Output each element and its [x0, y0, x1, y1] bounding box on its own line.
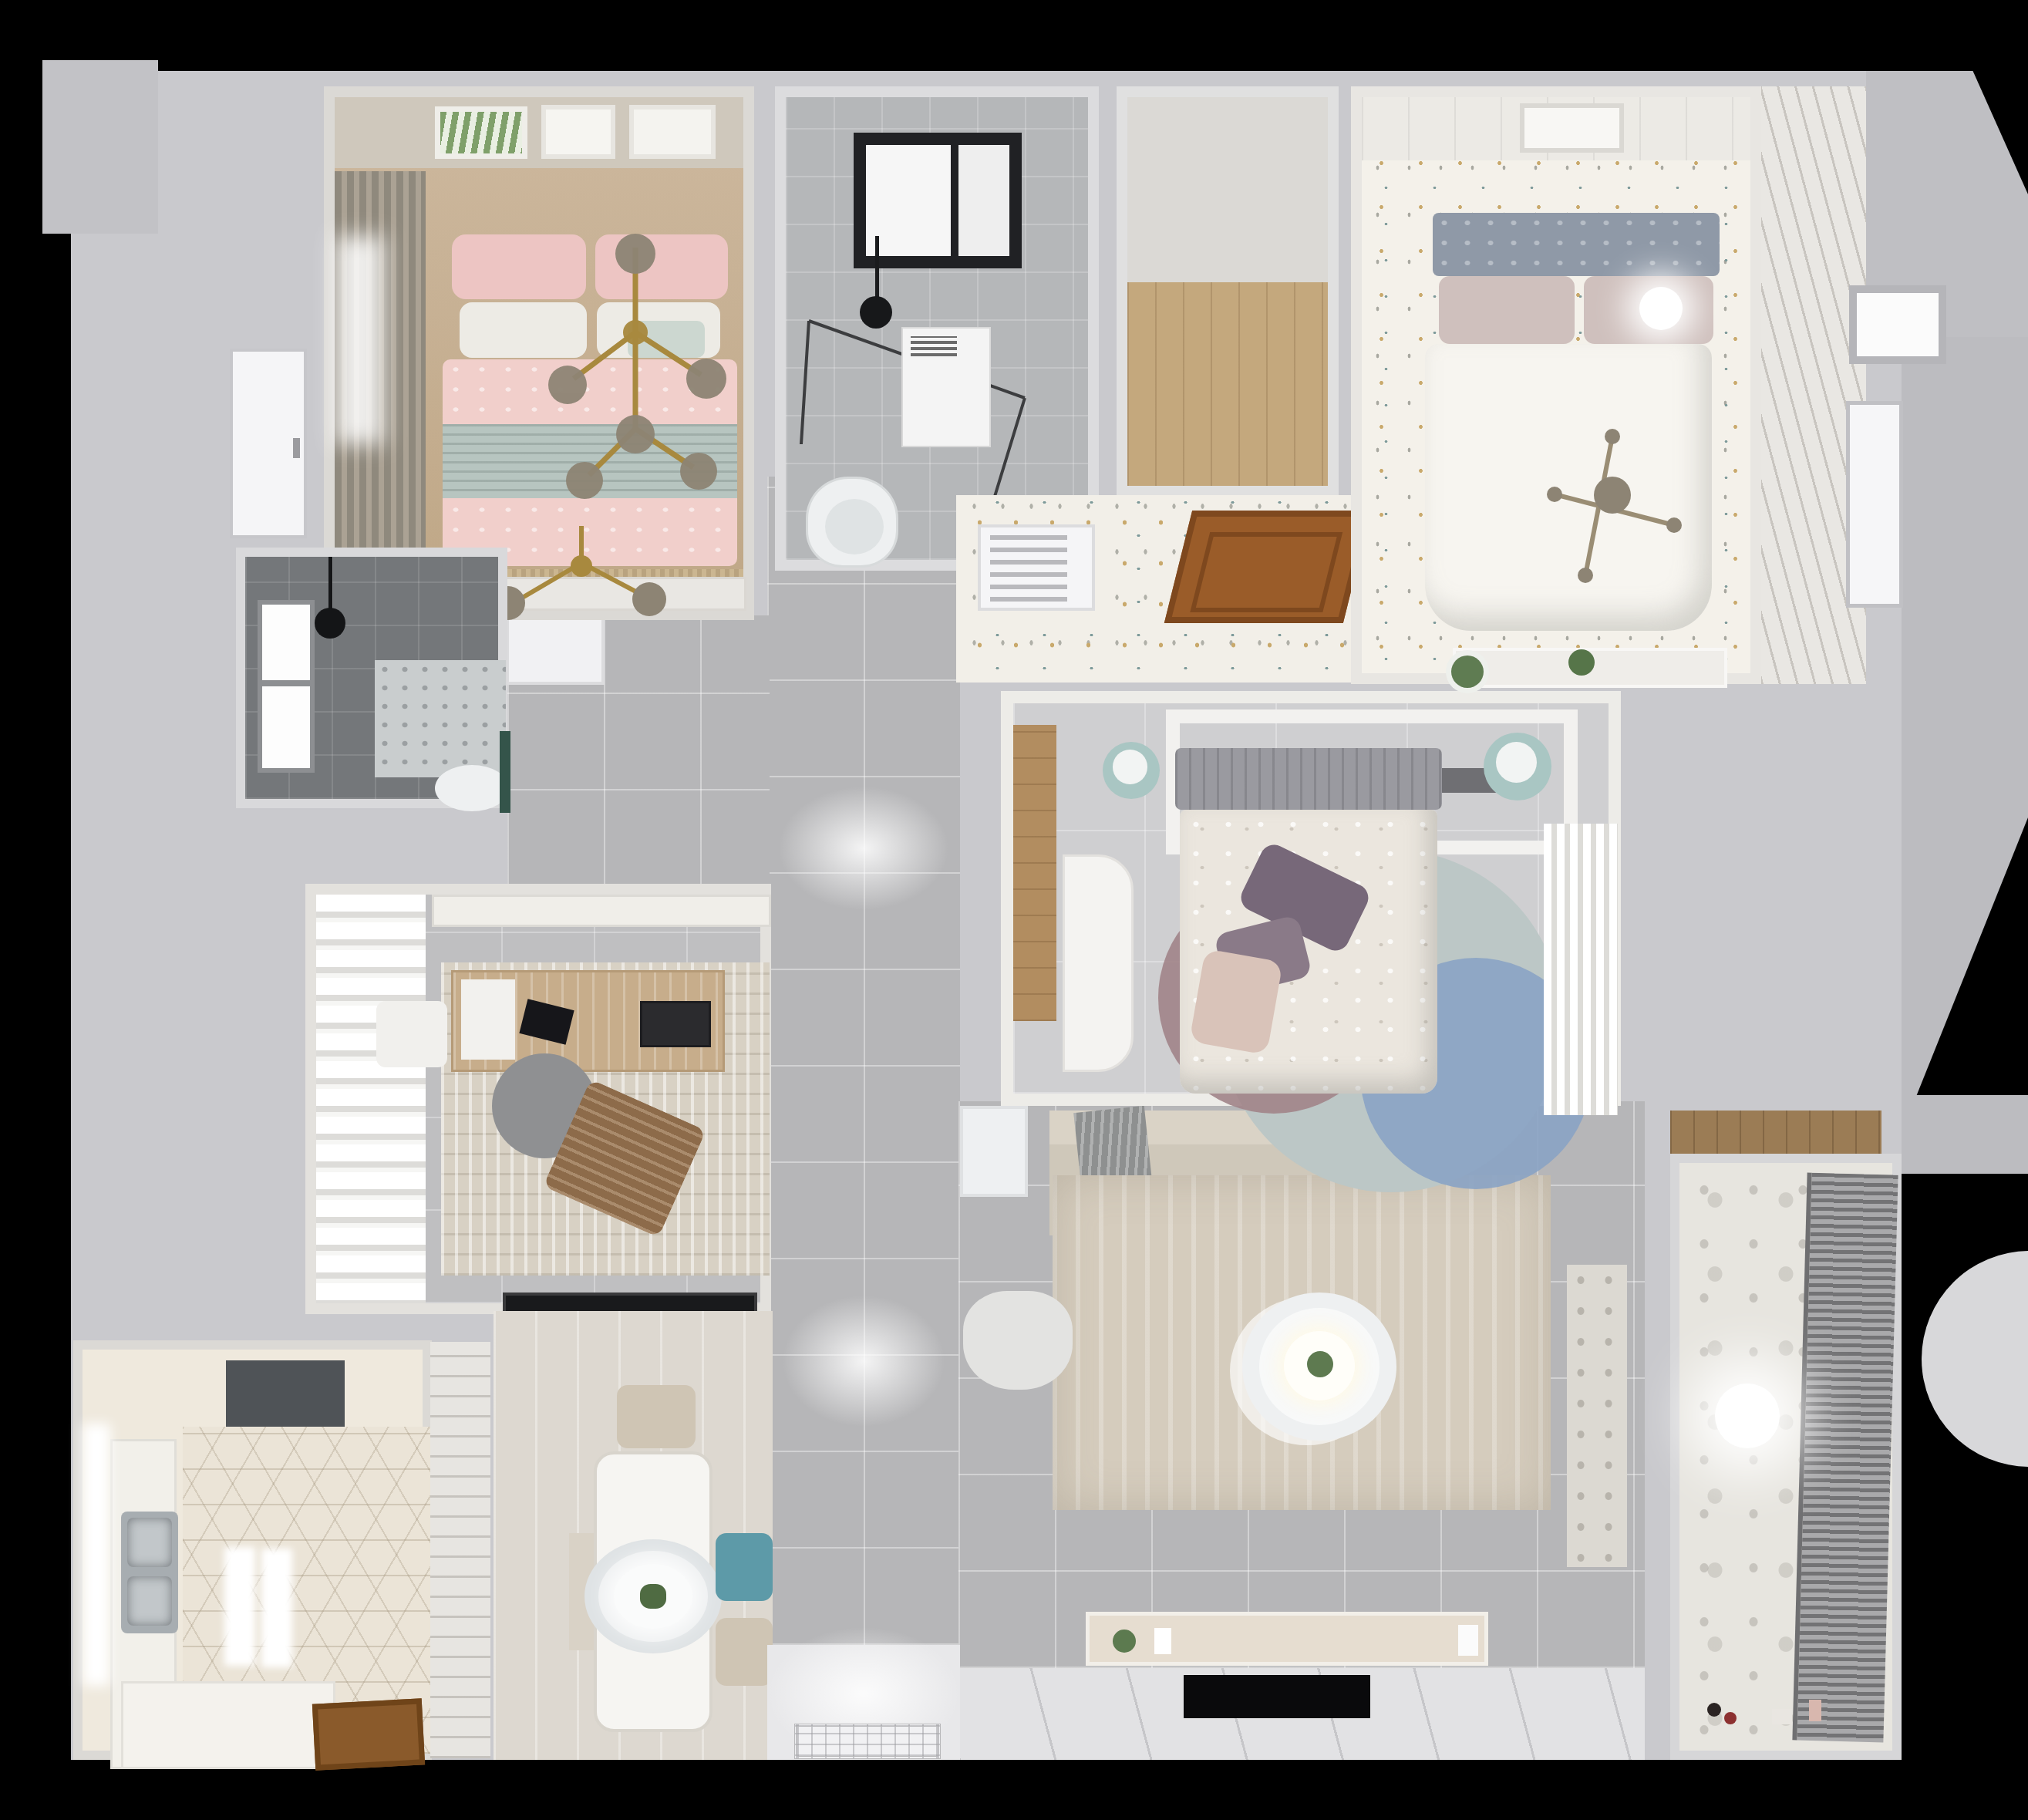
kitchen-wood-door: [312, 1698, 425, 1770]
room-bedroom-center: [1001, 691, 1621, 1106]
air-vent-grille: [978, 524, 1095, 611]
wall-art-green: [435, 106, 527, 159]
blush-pillow-left: [1439, 276, 1575, 344]
corridor-light-glow-2: [783, 1296, 945, 1427]
wall-tv: [1184, 1675, 1370, 1718]
plant-icon-2: [1568, 649, 1595, 676]
room-bedroom-white: [1351, 86, 1761, 684]
room-bathroom-small: [236, 548, 507, 808]
blush-pillow: [1189, 949, 1283, 1055]
outer-wall-top-left: [42, 60, 158, 234]
toy-mat: [1772, 1709, 1792, 1724]
toy-2: [1724, 1712, 1737, 1724]
room-bedroom-pink: [324, 86, 754, 620]
venetian-blinds: [1792, 1173, 1898, 1743]
teal-pouf-left: [1103, 742, 1160, 799]
room-living: [958, 1101, 1645, 1668]
double-sink: [121, 1512, 178, 1633]
window-glow: [335, 236, 384, 444]
round-coffee-table: [1242, 1293, 1396, 1441]
open-wood-door: [1164, 511, 1371, 623]
room-walk-in-closet: [1117, 86, 1339, 497]
bathroom-window: [258, 600, 315, 773]
bed-center: [1175, 748, 1442, 1094]
range-hood: [226, 1360, 345, 1427]
toy-figure: [1809, 1700, 1821, 1721]
toilet: [806, 477, 898, 568]
room-dining: [494, 1311, 773, 1760]
monitor: [640, 1001, 711, 1047]
skylight-pane-2: [958, 145, 1009, 256]
shower-head-icon-2: [315, 608, 345, 639]
corridor-vertical: [767, 477, 960, 1645]
ornate-doormat: [794, 1724, 941, 1759]
entry-window-opening: [1849, 285, 1946, 364]
bedroom-pink-door: [230, 349, 307, 538]
ceiling-lamp-glow: [1639, 287, 1683, 330]
hall-closet-nook: [506, 614, 605, 685]
room-balcony: [1670, 1154, 1902, 1760]
branch-chandelier: [512, 240, 759, 510]
dining-chair-teal: [716, 1533, 773, 1601]
wall-cabinet: [432, 895, 771, 927]
dining-chair-bottom: [716, 1618, 773, 1686]
wall-art-frame: [1520, 103, 1624, 153]
papers: [461, 979, 515, 1060]
console-plant: [1113, 1630, 1136, 1653]
ball-pendant-lamp: [1715, 1384, 1780, 1448]
green-accent: [500, 731, 510, 813]
wall-art-white-1: [541, 105, 615, 159]
door-handle: [293, 438, 300, 458]
sheer-curtains: [316, 895, 426, 1303]
room-kitchen: [73, 1340, 432, 1760]
gray-headboard: [1175, 748, 1442, 810]
dining-chair-top: [617, 1385, 696, 1448]
coffee-table-plant: [1307, 1351, 1333, 1377]
closet-wood-floor: [1127, 282, 1328, 486]
shower-tray-mosaic: [375, 660, 506, 777]
ceiling-light-1: [224, 1547, 255, 1666]
rail-plant-icon: [1451, 656, 1484, 688]
branch-chandelier-cross: [1539, 421, 1686, 598]
floor-plan-render: [0, 0, 2028, 1820]
side-table: [960, 1106, 1028, 1197]
teal-pouf-right: [1484, 733, 1551, 800]
sheer-curtain-wardrobe: [1544, 824, 1618, 1115]
apartment-entry-door: [1846, 401, 1903, 608]
slatted-pantry: [430, 1342, 490, 1758]
washing-machine: [901, 327, 991, 447]
armchair: [963, 1291, 1073, 1390]
tv-console: [1086, 1612, 1488, 1666]
wall-art-white-2: [629, 105, 716, 159]
oval-pendant-lamp: [584, 1539, 722, 1653]
wood-floor-strip: [1013, 725, 1056, 1021]
toy: [1707, 1703, 1721, 1717]
white-chair: [376, 1001, 447, 1067]
stairwell-disc: [1922, 1251, 2028, 1467]
closet-ceiling: [1127, 97, 1328, 282]
room-study: [305, 884, 771, 1314]
toilet-2: [435, 765, 509, 811]
shower-head-icon: [860, 296, 892, 329]
kitchen-window-glow: [83, 1424, 110, 1686]
corridor-light-glow: [779, 787, 948, 910]
wood-shelf-niche: [1670, 1111, 1881, 1155]
bottom-counter: [121, 1681, 335, 1769]
plant-centerpiece: [640, 1584, 666, 1609]
ceiling-light-2: [261, 1549, 292, 1667]
tufted-headboard: [1433, 213, 1720, 276]
shower-arm: [875, 236, 879, 302]
white-desk: [1063, 854, 1134, 1072]
shower-arm-2: [328, 557, 332, 612]
patterned-tile-border: [1567, 1265, 1627, 1567]
